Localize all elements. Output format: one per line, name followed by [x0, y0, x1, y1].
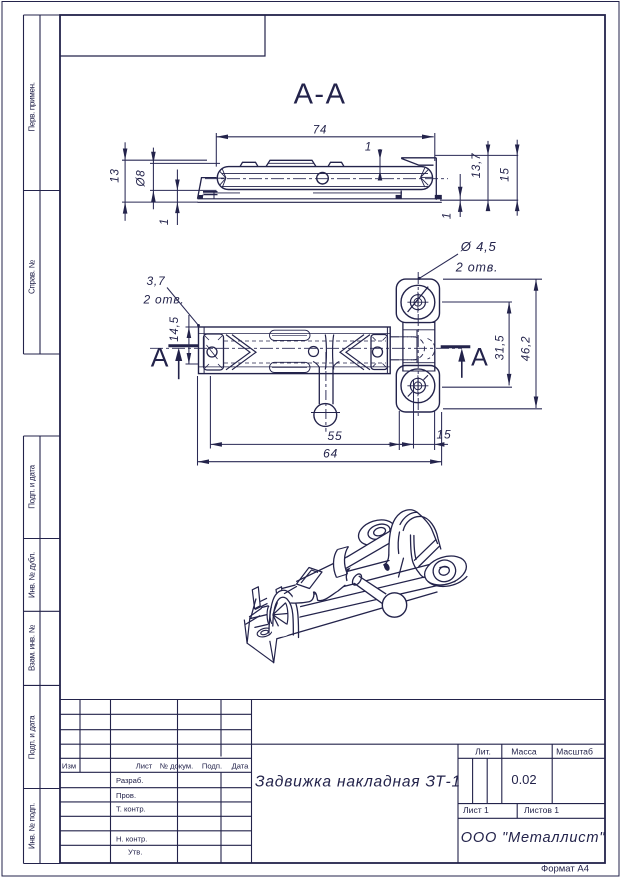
svg-text:14,5: 14,5 [169, 316, 181, 342]
svg-text:Дата: Дата [232, 762, 250, 771]
svg-text:15: 15 [500, 167, 512, 181]
svg-text:64: 64 [323, 447, 338, 461]
svg-text:Ø8: Ø8 [136, 170, 148, 188]
svg-text:А-А: А-А [294, 79, 347, 111]
svg-text:Перв. примен.: Перв. примен. [28, 82, 37, 131]
svg-text:55: 55 [328, 429, 343, 443]
svg-text:74: 74 [313, 125, 327, 137]
svg-text:Утв.: Утв. [128, 848, 142, 857]
svg-text:Взам. инв. №: Взам. инв. № [28, 624, 37, 671]
svg-text:Листов 1: Листов 1 [524, 805, 559, 815]
svg-text:Масштаб: Масштаб [556, 747, 593, 757]
svg-text:3,7: 3,7 [146, 274, 166, 288]
svg-text:ООО "Металлист": ООО "Металлист" [461, 830, 606, 846]
svg-text:Ø 4,5: Ø 4,5 [460, 239, 497, 254]
svg-text:1: 1 [442, 212, 454, 219]
svg-text:31,5: 31,5 [495, 335, 507, 361]
svg-text:Формат А4: Формат А4 [541, 864, 589, 875]
svg-text:Подп. и дата: Подп. и дата [28, 715, 37, 759]
svg-text:А: А [151, 343, 169, 373]
svg-text:Т. контр.: Т. контр. [116, 805, 146, 814]
svg-text:Лист 1: Лист 1 [463, 805, 489, 815]
svg-text:№ докум.: № докум. [160, 762, 193, 771]
svg-text:Пров.: Пров. [116, 791, 136, 800]
svg-text:Инв. № дубл.: Инв. № дубл. [28, 552, 37, 598]
svg-text:Задвижка накладная ЗТ-1: Задвижка накладная ЗТ-1 [255, 774, 461, 791]
svg-text:Инв. № подп.: Инв. № подп. [28, 803, 37, 849]
svg-text:1: 1 [365, 142, 372, 154]
svg-text:Лит.: Лит. [475, 747, 491, 757]
svg-text:2 отв.: 2 отв. [142, 293, 184, 307]
svg-text:Н. контр.: Н. контр. [116, 835, 147, 844]
svg-text:1: 1 [159, 218, 171, 225]
svg-text:Масса: Масса [511, 747, 537, 757]
svg-text:Лист: Лист [136, 762, 153, 771]
svg-text:46,2: 46,2 [521, 336, 533, 362]
svg-text:13: 13 [110, 168, 122, 182]
svg-text:0.02: 0.02 [511, 772, 536, 787]
svg-text:А: А [471, 344, 488, 372]
svg-text:Разраб.: Разраб. [116, 776, 143, 785]
svg-text:15: 15 [437, 428, 452, 442]
svg-text:Справ. №: Справ. № [28, 259, 37, 294]
svg-text:2 отв.: 2 отв. [455, 261, 499, 275]
svg-text:Изм: Изм [62, 762, 76, 771]
svg-text:Подп.: Подп. [202, 762, 222, 771]
svg-text:Подп. и дата: Подп. и дата [28, 464, 37, 508]
svg-text:13,7: 13,7 [471, 153, 483, 179]
